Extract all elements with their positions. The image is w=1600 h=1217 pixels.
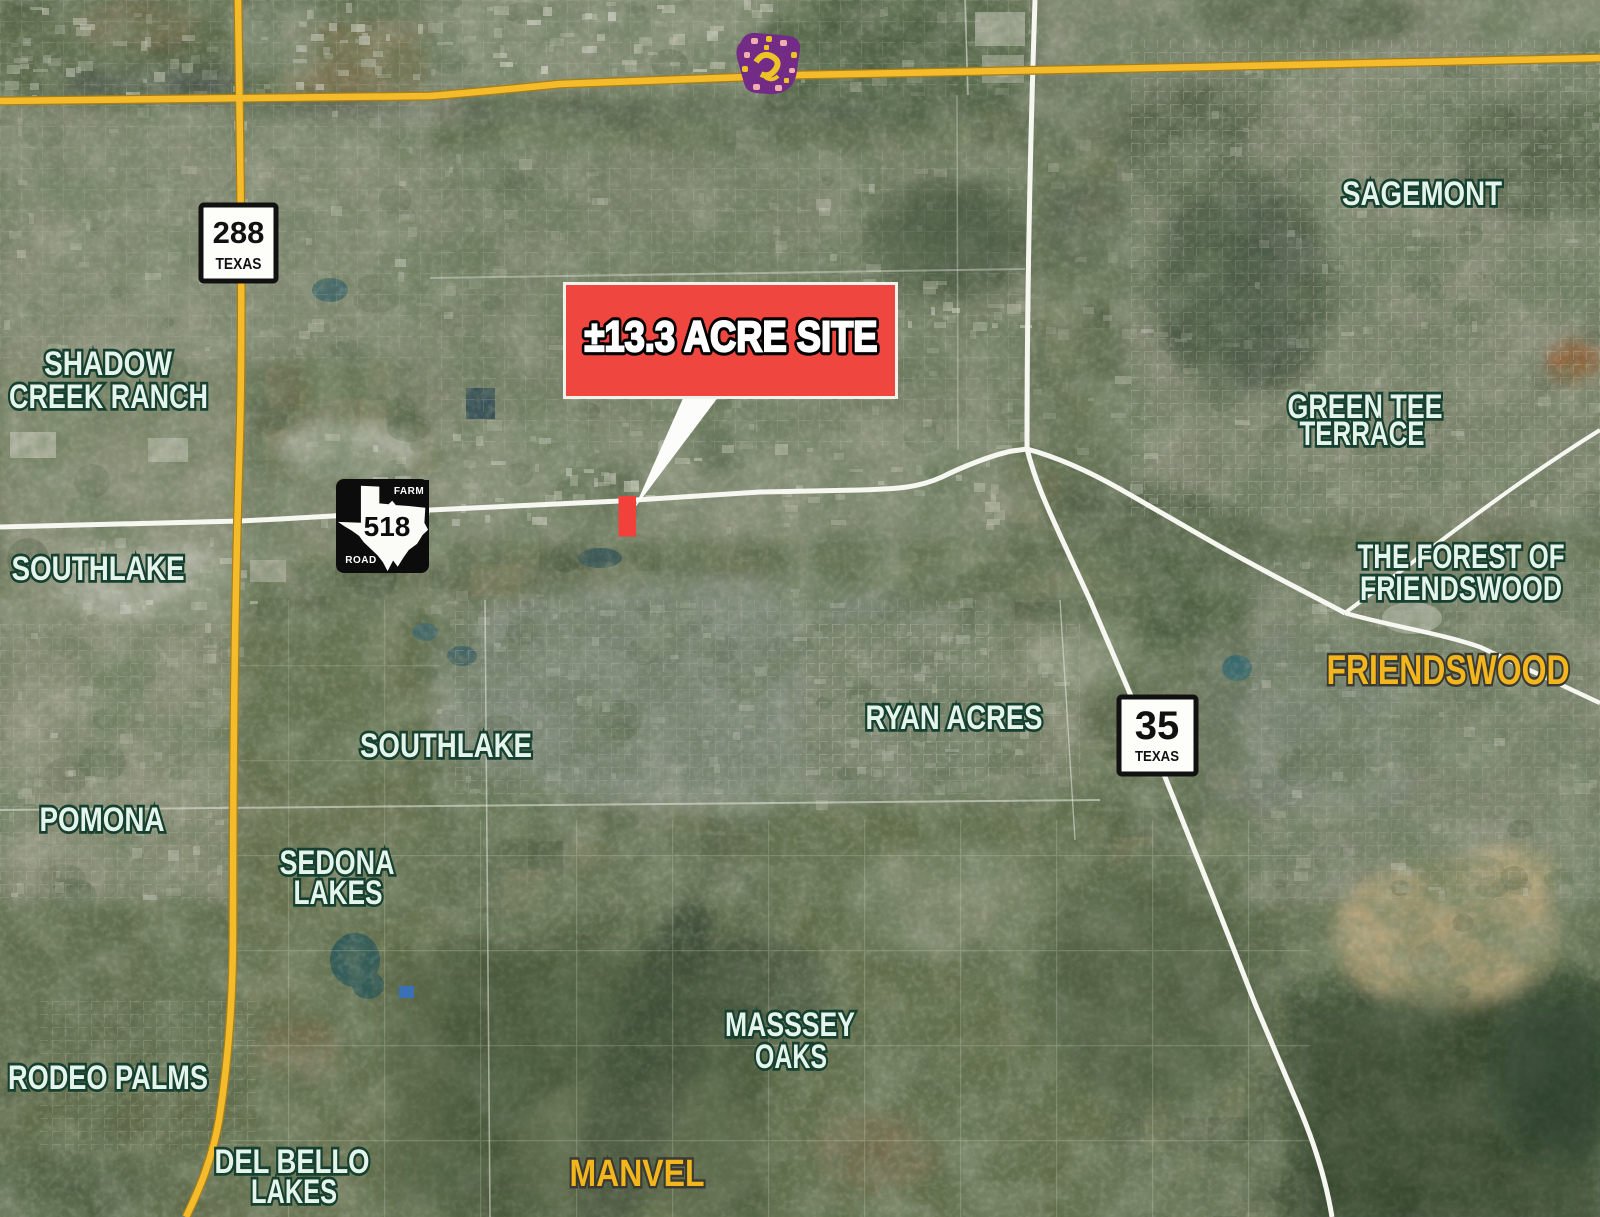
svg-text:SAGEMONT: SAGEMONT	[1342, 175, 1502, 213]
svg-text:SOUTHLAKE: SOUTHLAKE	[12, 550, 185, 588]
svg-text:TEXAS: TEXAS	[1135, 748, 1179, 765]
svg-text:SOUTHLAKE: SOUTHLAKE	[360, 727, 532, 765]
svg-text:CREEK RANCH: CREEK RANCH	[9, 378, 208, 416]
svg-text:35: 35	[1135, 704, 1180, 748]
svg-text:TERRACE: TERRACE	[1300, 415, 1425, 453]
svg-text:518: 518	[364, 511, 411, 542]
svg-text:LAKES: LAKES	[251, 1173, 337, 1211]
svg-text:POMONA: POMONA	[40, 801, 165, 839]
svg-text:TEXAS: TEXAS	[216, 256, 262, 273]
svg-text:OAKS: OAKS	[755, 1038, 827, 1076]
svg-text:ROAD: ROAD	[345, 555, 376, 566]
svg-text:LAKES: LAKES	[294, 874, 383, 912]
svg-text:288: 288	[213, 215, 265, 250]
svg-text:FRIENDSWOOD: FRIENDSWOOD	[1327, 646, 1570, 693]
svg-text:RODEO PALMS: RODEO PALMS	[8, 1059, 208, 1097]
svg-text:±13.3 ACRE SITE: ±13.3 ACRE SITE	[585, 313, 878, 361]
svg-text:FRIENDSWOOD: FRIENDSWOOD	[1360, 570, 1562, 608]
svg-text:MANVEL: MANVEL	[570, 1153, 705, 1195]
svg-text:FARM: FARM	[394, 486, 424, 497]
svg-text:RYAN ACRES: RYAN ACRES	[866, 699, 1043, 737]
